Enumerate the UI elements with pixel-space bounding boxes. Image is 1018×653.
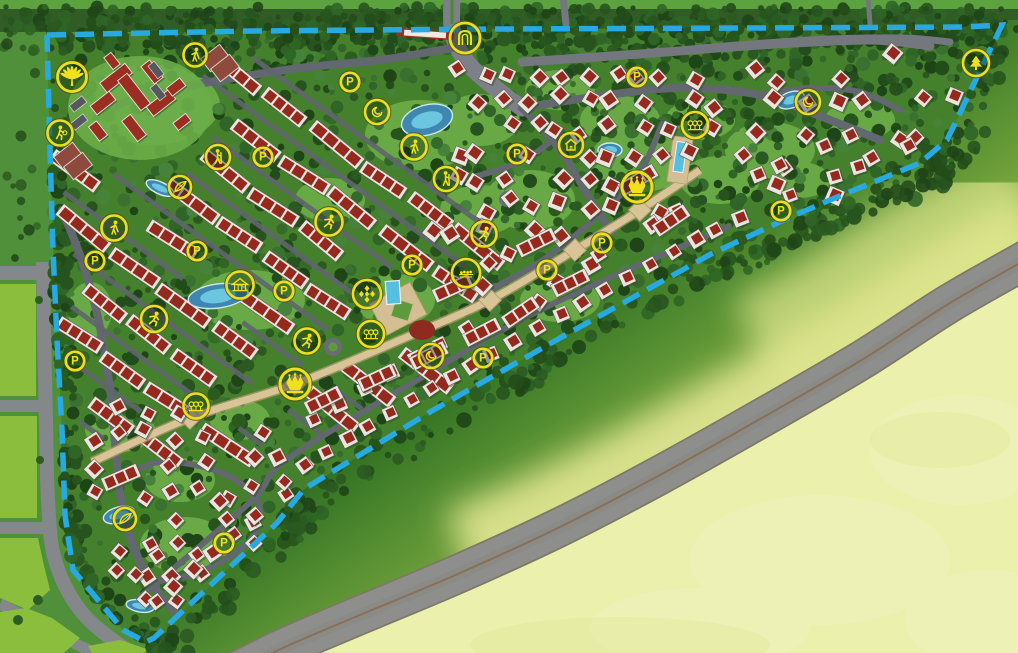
svg-text:P: P: [408, 260, 416, 272]
svg-text:P: P: [513, 149, 521, 161]
svg-text:P: P: [346, 77, 354, 89]
svg-text:P: P: [71, 356, 79, 368]
svg-text:P: P: [598, 238, 606, 250]
svg-text:P: P: [259, 152, 267, 164]
svg-text:P: P: [633, 72, 641, 84]
svg-text:P: P: [193, 246, 201, 258]
svg-text:P: P: [91, 256, 99, 268]
svg-text:P: P: [543, 265, 551, 277]
svg-text:P: P: [220, 538, 228, 550]
svg-text:P: P: [777, 206, 785, 218]
svg-text:P: P: [479, 353, 487, 365]
svg-text:P: P: [280, 286, 288, 298]
